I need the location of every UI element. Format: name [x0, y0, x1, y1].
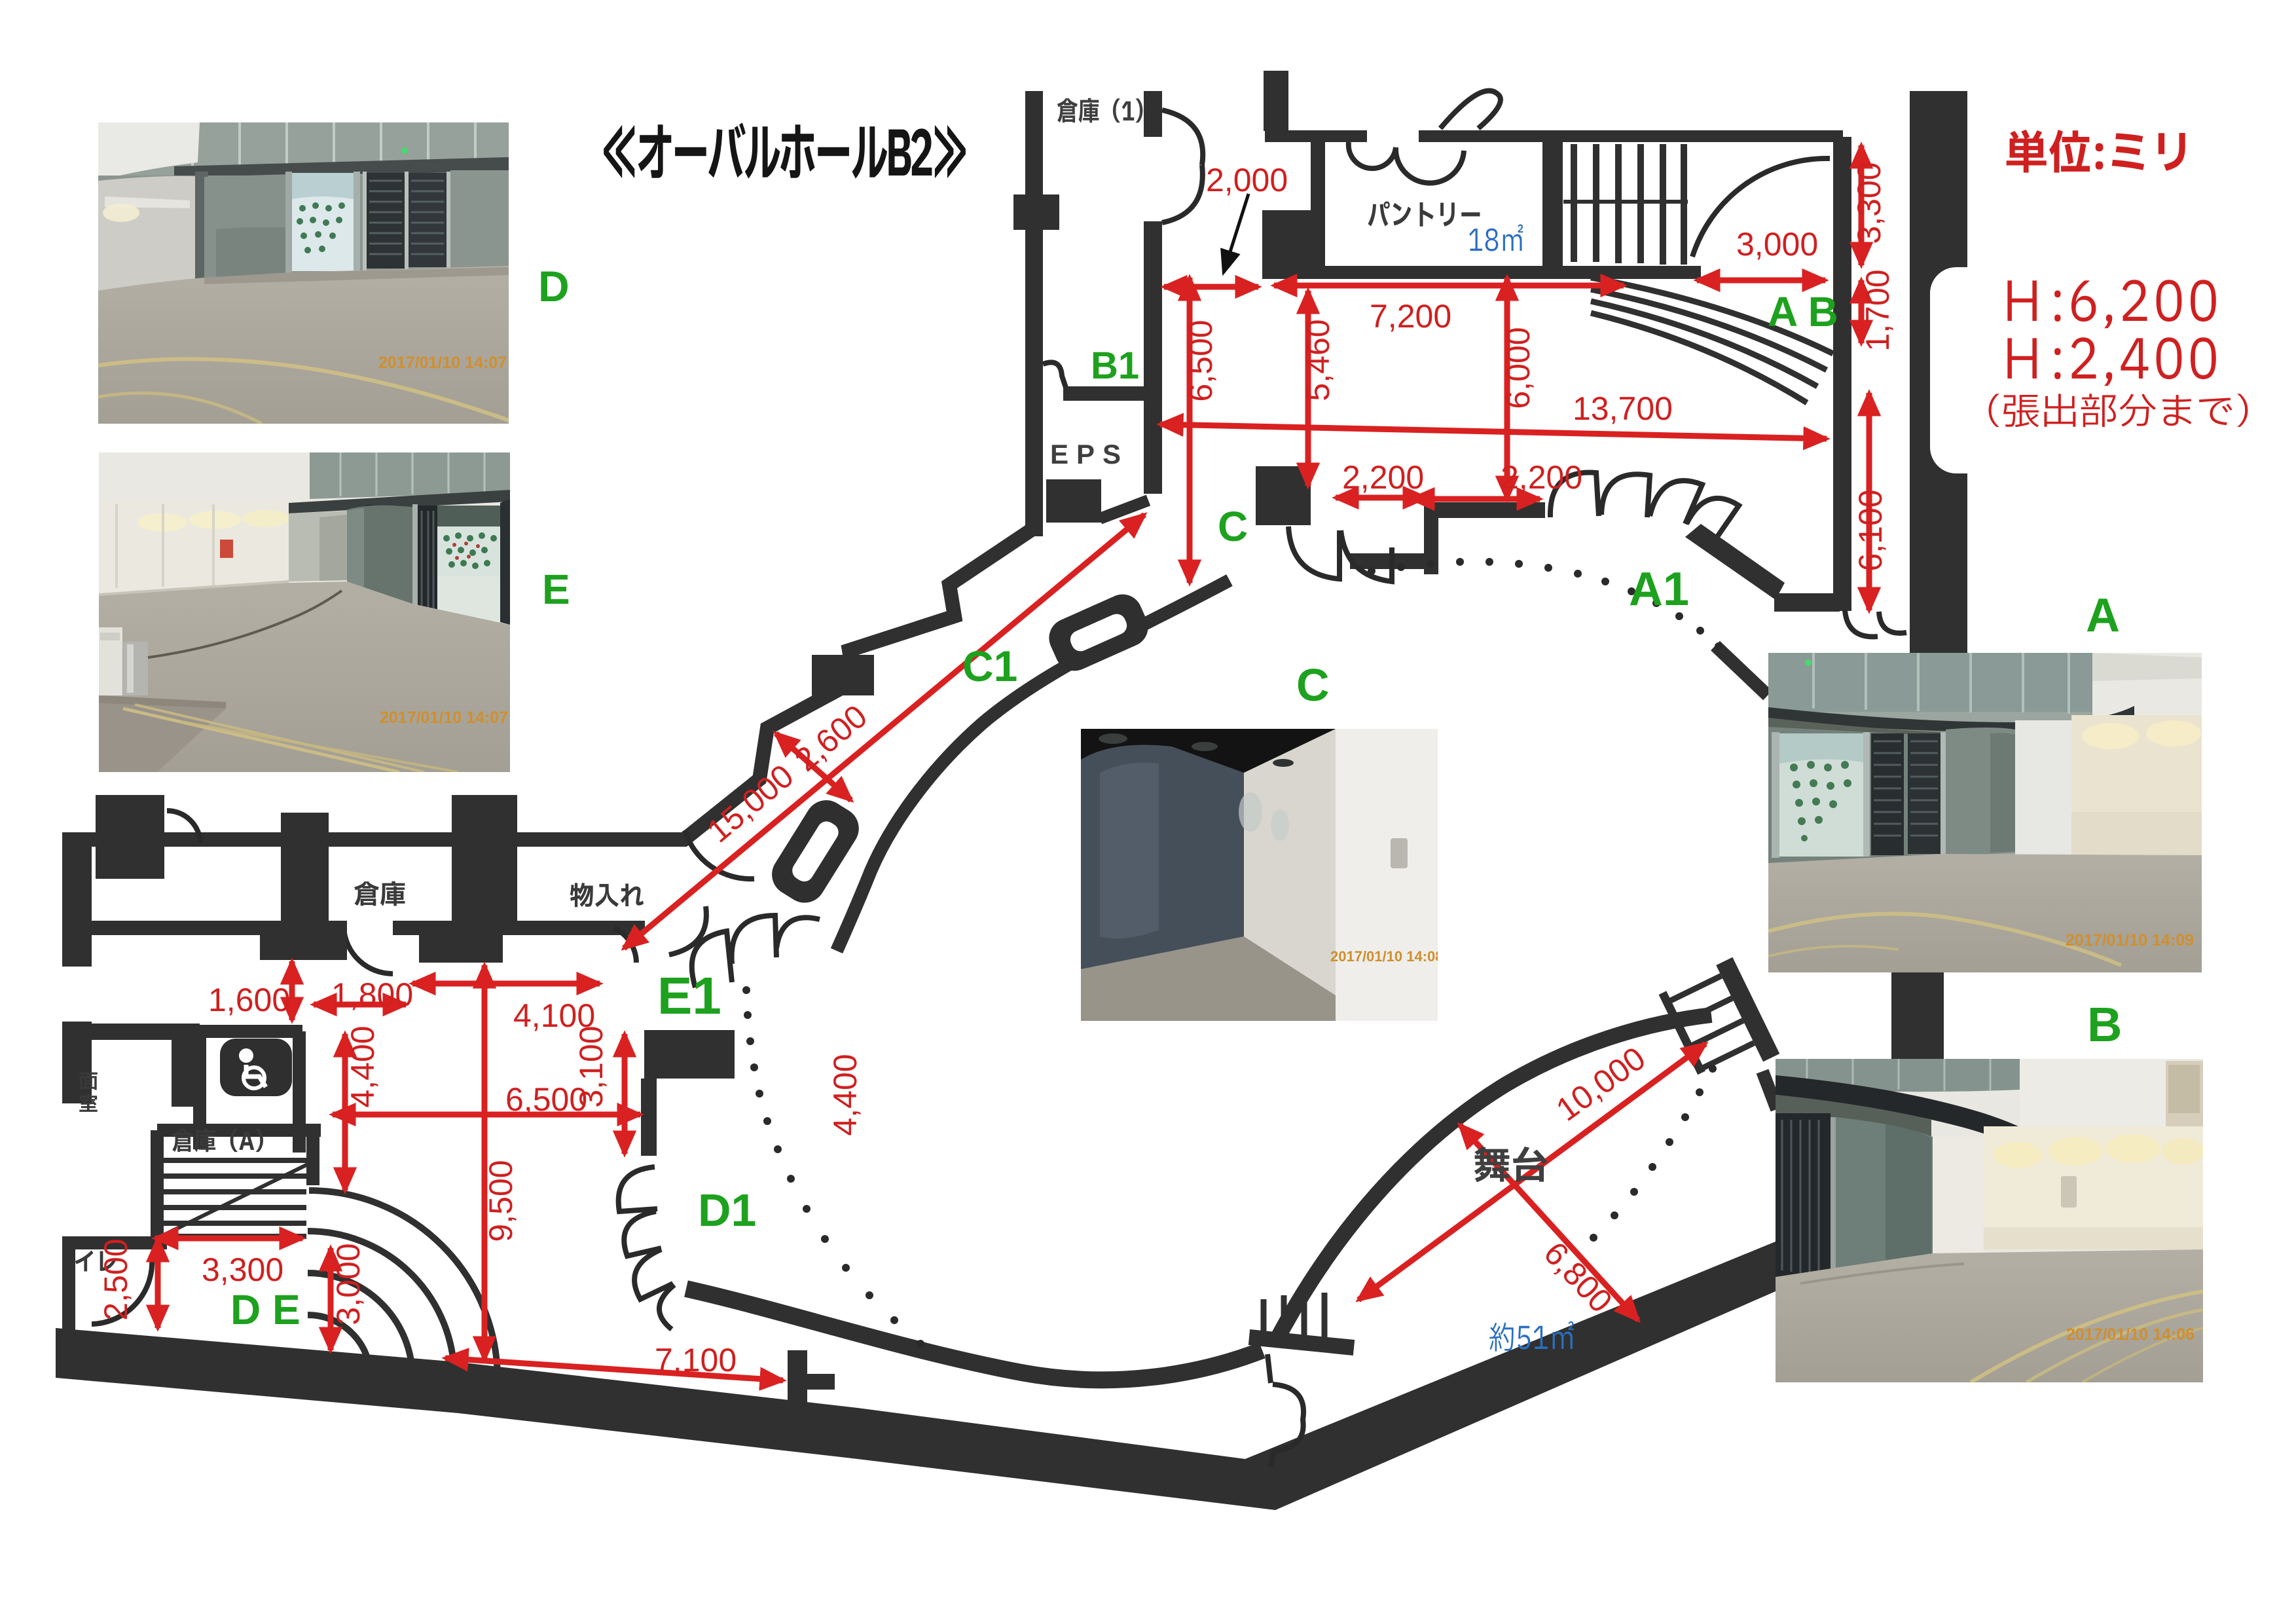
svg-text:6,500: 6,500: [1182, 320, 1219, 401]
svg-text:1,700: 1,700: [1859, 269, 1896, 351]
svg-text:3,300: 3,300: [202, 1251, 283, 1288]
svg-text:3,300: 3,300: [1851, 162, 1887, 244]
svg-text:9,500: 9,500: [483, 1160, 519, 1242]
svg-text:D: D: [538, 262, 570, 310]
svg-text:4,400: 4,400: [344, 1025, 381, 1107]
svg-text:13,700: 13,700: [1573, 390, 1673, 427]
svg-text:2017/01/10 14:07: 2017/01/10 14:07: [380, 709, 508, 727]
svg-text:6,100: 6,100: [1852, 489, 1889, 571]
svg-text:15,000: 15,000: [700, 757, 800, 849]
svg-text:7,200: 7,200: [1370, 298, 1451, 335]
svg-text:3,000: 3,000: [330, 1243, 367, 1325]
svg-text:EPS: EPS: [1050, 439, 1129, 470]
svg-text:2,000: 2,000: [1206, 162, 1288, 198]
svg-text:4,400: 4,400: [827, 1054, 864, 1135]
svg-text:2,200: 2,200: [1342, 459, 1424, 496]
svg-text:C: C: [1296, 659, 1330, 710]
svg-text:1,600: 1,600: [208, 982, 290, 1018]
svg-text:B: B: [2087, 997, 2122, 1052]
svg-text:3,000: 3,000: [1736, 226, 1818, 263]
svg-text:D E: D E: [230, 1286, 301, 1333]
svg-text:1,800: 1,800: [331, 976, 413, 1013]
svg-text:2017/01/10 14:09: 2017/01/10 14:09: [2066, 931, 2194, 950]
svg-text:6,800: 6,800: [1537, 1235, 1619, 1320]
svg-text:A1: A1: [1629, 563, 1689, 616]
svg-text:2017/01/10 14:06: 2017/01/10 14:06: [2066, 1325, 2195, 1344]
svg-text:2,200: 2,200: [1501, 459, 1582, 496]
svg-text:2,500: 2,500: [98, 1238, 134, 1320]
svg-text:C: C: [1218, 503, 1248, 550]
svg-text:D1: D1: [698, 1185, 756, 1236]
svg-text:E: E: [542, 566, 570, 613]
svg-text:7,100: 7,100: [655, 1342, 737, 1378]
svg-text:E1: E1: [657, 967, 721, 1025]
svg-text:5,460: 5,460: [1300, 319, 1336, 401]
svg-text:A B: A B: [1768, 288, 1838, 335]
svg-text:A: A: [2086, 589, 2120, 642]
svg-text:2017/01/10 14:08: 2017/01/10 14:08: [1330, 948, 1444, 965]
svg-text:3,100: 3,100: [573, 1025, 610, 1107]
svg-text:2017/01/10 14:07: 2017/01/10 14:07: [378, 354, 507, 372]
svg-text:C1: C1: [962, 642, 1017, 690]
svg-text:6,000: 6,000: [1500, 327, 1537, 409]
svg-text:B1: B1: [1091, 344, 1139, 387]
